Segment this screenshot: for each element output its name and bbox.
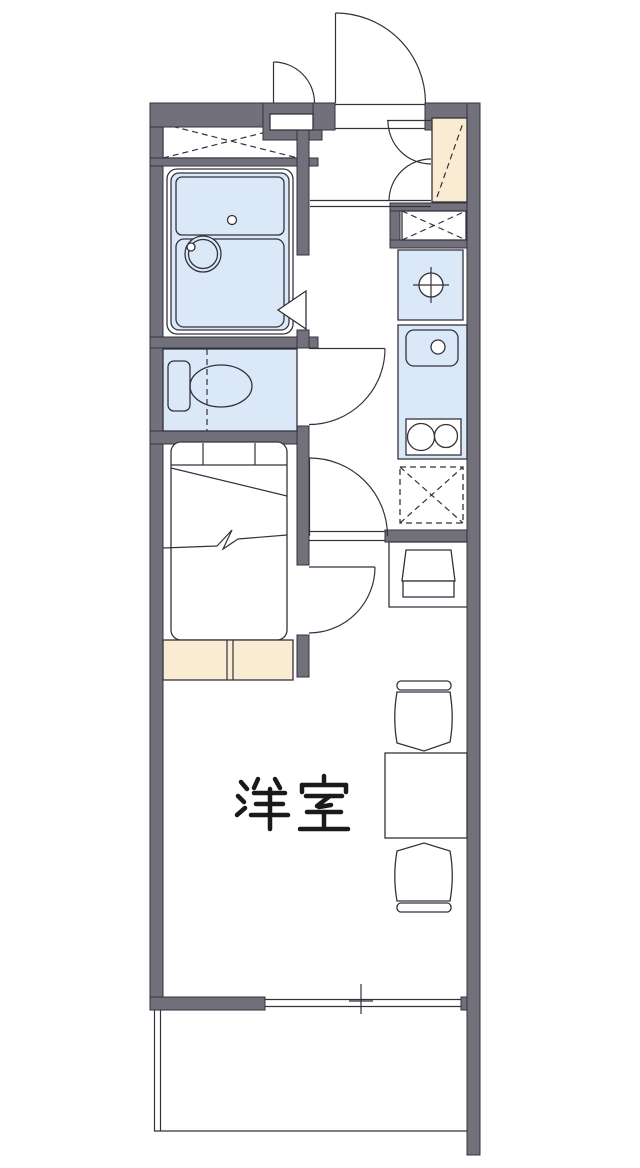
kitchen: [398, 211, 467, 523]
wall-alcove-right: [297, 426, 309, 565]
outer-wall-bottom-right: [461, 997, 467, 1010]
wall-bath-toilet: [150, 337, 318, 348]
floor-plan: 洋室: [0, 0, 640, 1168]
wall-jamb-1: [297, 330, 309, 348]
outer-wall-bottom: [150, 997, 265, 1010]
unit-bath: [167, 169, 306, 334]
chair-top: [395, 681, 453, 751]
meter-box-niche: [270, 114, 313, 130]
washbasin: [185, 236, 221, 272]
wall-kitchen-band: [390, 240, 467, 248]
background: [0, 0, 640, 1168]
wall-alcove-pillar: [297, 635, 309, 677]
storage-step: [163, 640, 293, 680]
outer-wall-top-left: [150, 103, 270, 127]
wall-closet-bath: [150, 158, 318, 166]
washing-machine-space: [398, 250, 463, 320]
kitchen-shelf: [402, 211, 466, 240]
stool: [402, 550, 455, 581]
wall-kitchen-mainroom: [385, 530, 467, 542]
floorplan-svg: [0, 0, 640, 1168]
kitchen-faucet: [431, 340, 445, 354]
bathtub-drain: [228, 216, 237, 225]
refrigerator-space: [400, 467, 463, 523]
washbasin-faucet: [187, 243, 195, 251]
kitchen-counter: [398, 325, 467, 459]
wall-bath-right: [297, 127, 309, 255]
outer-wall-left: [150, 103, 163, 1010]
table: [385, 753, 467, 838]
outer-wall-right: [467, 103, 480, 1155]
stove-burners: [406, 419, 461, 455]
outer-wall-top-mid: [313, 103, 335, 130]
chair-bottom: [395, 843, 453, 912]
